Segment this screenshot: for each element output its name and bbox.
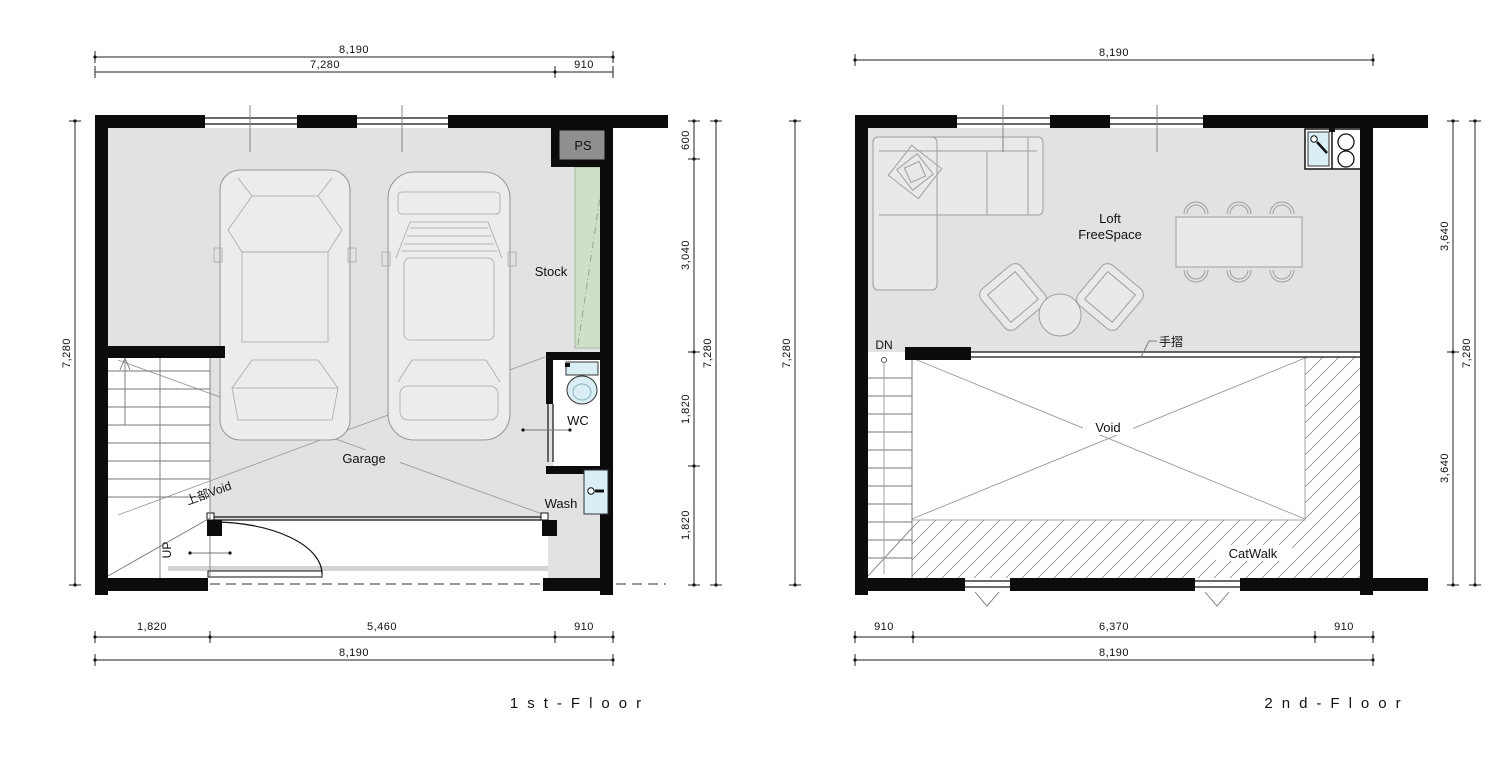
second-floor-title: 2nd-Floor [1264,695,1409,712]
dim-right-seg4: 1,820 [680,510,692,540]
dim-left-total: 7,280 [61,338,73,368]
dim-top-total: 8,190 [339,44,369,56]
dim-bottom-total: 8,190 [339,647,369,659]
dim-right-seg1: 3,640 [1439,221,1451,251]
wash-label: Wash [545,496,578,511]
dim-bottom-seg3: 910 [1334,621,1354,633]
dim-right-seg2: 3,640 [1439,453,1451,483]
loft-label-line1: Loft [1099,211,1121,226]
garage-label: Garage [342,451,385,466]
dim-right-total: 7,280 [702,338,714,368]
dim-bottom-seg1: 910 [874,621,894,633]
floor-plan-drawing: Garage PS Stock WC Wash 上部Void UP 8,190 … [0,0,1500,784]
ps-label: PS [574,138,592,153]
toilet-tank [566,362,598,375]
catwalk-label: CatWalk [1229,546,1278,561]
catwalk-bottom [912,520,1360,578]
dim-top-seg2: 910 [574,59,594,71]
catwalk-right [1305,357,1360,520]
dn-label: DN [875,338,892,352]
dim-bottom-seg3: 910 [574,621,594,633]
dim-bottom-seg1: 1,820 [137,621,167,633]
second-floor-plan: Loft FreeSpace Void CatWalk DN 手摺 8,190 … [750,0,1500,784]
dim-top-total: 8,190 [1099,47,1129,59]
dim-bottom-seg2: 6,370 [1099,621,1129,633]
dim-left-total: 7,280 [781,338,793,368]
kitchen-unit [1305,127,1362,169]
wash-basin [584,470,608,514]
dim-right-total: 7,280 [1461,338,1473,368]
car-coupe [382,172,516,440]
stair-start-marker [882,358,887,363]
dim-right-seg3: 1,820 [680,394,692,424]
stove-burner [1338,151,1354,167]
handrail-label: 手摺 [1159,334,1183,349]
void-label: Void [1095,420,1120,435]
first-floor-title: 1st-Floor [510,695,650,712]
dim-right-seg2: 3,040 [680,240,692,270]
dim-bottom-total: 8,190 [1099,647,1129,659]
car-sports [214,170,356,440]
stove-burner [1338,134,1354,150]
dim-bottom-seg2: 5,460 [367,621,397,633]
loft-label-line2: FreeSpace [1078,227,1142,242]
dim-top-seg1: 7,280 [310,59,340,71]
dim-right-seg1: 600 [680,130,692,150]
up-label: UP [160,542,174,559]
first-floor-plan: Garage PS Stock WC Wash 上部Void UP 8,190 … [0,0,750,784]
wc-label: WC [567,413,589,428]
dining-table [1176,217,1302,267]
round-table [1039,294,1081,336]
stock-label: Stock [535,264,568,279]
